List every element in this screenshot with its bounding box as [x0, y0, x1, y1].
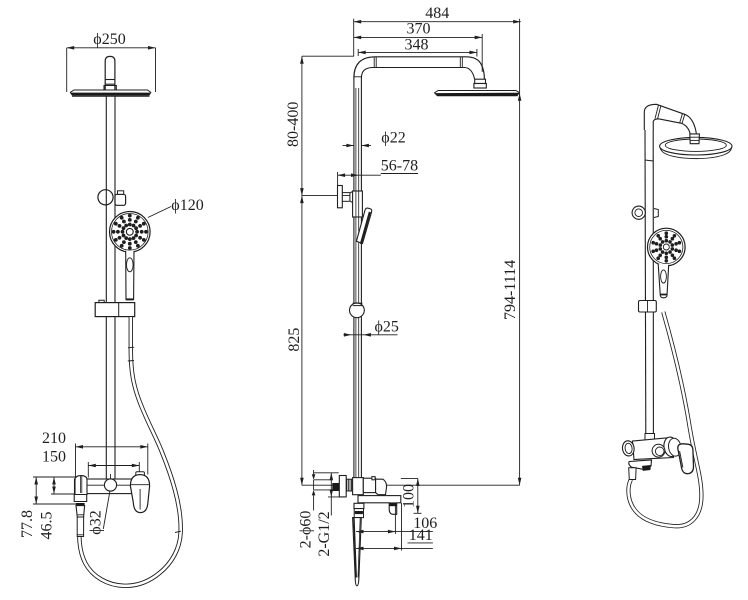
svg-text:2-G1/2: 2-G1/2: [316, 511, 333, 556]
svg-text:77.8: 77.8: [19, 510, 36, 538]
svg-text:2-ϕ60: 2-ϕ60: [298, 511, 315, 549]
svg-text:ϕ120: ϕ120: [171, 197, 203, 214]
svg-text:ϕ22: ϕ22: [381, 130, 405, 147]
svg-text:ϕ25: ϕ25: [374, 319, 398, 336]
svg-text:150: 150: [42, 449, 66, 466]
svg-text:825: 825: [286, 328, 303, 352]
svg-text:370: 370: [407, 21, 431, 38]
svg-text:348: 348: [405, 37, 429, 54]
svg-text:484: 484: [425, 5, 449, 22]
svg-text:ϕ32: ϕ32: [88, 510, 105, 534]
svg-text:80-400: 80-400: [285, 102, 302, 147]
svg-text:141: 141: [409, 527, 433, 544]
svg-text:100: 100: [401, 484, 418, 508]
svg-text:210: 210: [42, 430, 66, 447]
svg-text:ϕ250: ϕ250: [93, 31, 125, 48]
svg-text:794-1114: 794-1114: [502, 260, 519, 320]
svg-text:56-78: 56-78: [381, 158, 418, 175]
svg-text:46.5: 46.5: [39, 512, 56, 540]
